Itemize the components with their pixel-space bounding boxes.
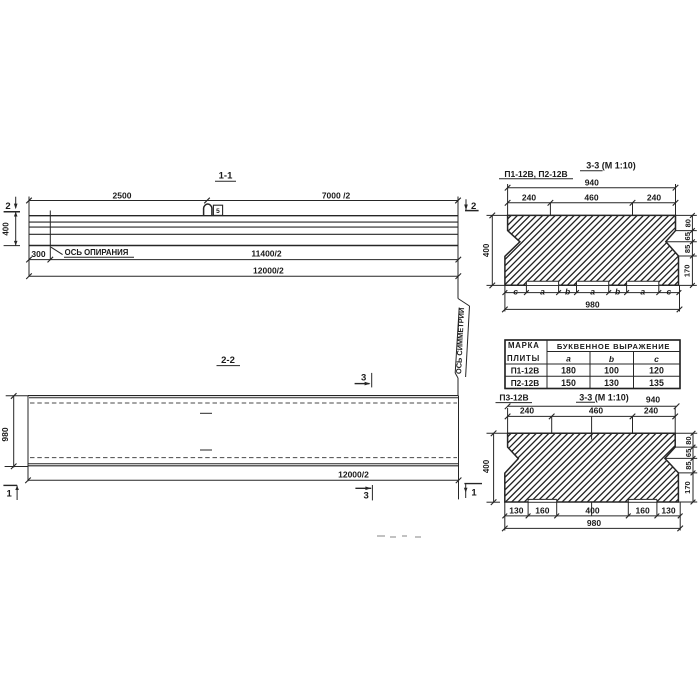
- svg-text:130: 130: [661, 506, 675, 516]
- svg-text:a: a: [590, 286, 595, 296]
- svg-text:МАРКА: МАРКА: [508, 341, 540, 350]
- svg-text:1: 1: [6, 489, 12, 500]
- svg-text:a: a: [640, 286, 645, 296]
- svg-text:2500: 2500: [113, 190, 132, 200]
- svg-text:П1-12В, П2-12В: П1-12В, П2-12В: [504, 169, 567, 179]
- svg-text:ПЛИТЫ: ПЛИТЫ: [507, 354, 540, 363]
- svg-text:160: 160: [535, 506, 549, 516]
- svg-text:150: 150: [561, 378, 576, 388]
- svg-text:c: c: [654, 354, 659, 364]
- svg-text:180: 180: [561, 366, 576, 376]
- svg-text:b: b: [615, 286, 620, 296]
- svg-text:2: 2: [5, 201, 10, 212]
- svg-text:980: 980: [587, 518, 601, 528]
- svg-text:П1-12В: П1-12В: [511, 366, 540, 376]
- svg-text:1: 1: [471, 487, 477, 498]
- svg-text:2-2: 2-2: [221, 355, 235, 366]
- svg-text:940: 940: [585, 178, 599, 188]
- svg-text:65: 65: [683, 232, 692, 240]
- svg-text:ОСЬ ОПИРАНИЯ: ОСЬ ОПИРАНИЯ: [65, 248, 129, 257]
- svg-text:a: a: [566, 354, 571, 364]
- svg-text:400: 400: [585, 506, 599, 516]
- svg-text:240: 240: [644, 406, 658, 416]
- svg-text:3-3 (М 1:10): 3-3 (М 1:10): [586, 161, 636, 171]
- svg-text:3: 3: [363, 490, 368, 501]
- svg-text:400: 400: [482, 459, 491, 473]
- svg-text:460: 460: [584, 192, 598, 202]
- svg-text:БУКВЕННОЕ ВЫРАЖЕНИЕ: БУКВЕННОЕ ВЫРАЖЕНИЕ: [557, 342, 670, 351]
- svg-text:ОСЬ СИММЕТРИИ: ОСЬ СИММЕТРИИ: [454, 308, 466, 375]
- svg-text:a: a: [540, 286, 545, 296]
- svg-text:160: 160: [636, 506, 650, 516]
- svg-text:c: c: [666, 286, 671, 296]
- svg-text:240: 240: [522, 192, 536, 202]
- svg-text:3: 3: [361, 373, 366, 384]
- svg-text:85: 85: [684, 461, 693, 469]
- svg-text:12000/2: 12000/2: [338, 469, 369, 479]
- svg-text:85: 85: [683, 245, 692, 253]
- svg-text:7000 /2: 7000 /2: [322, 191, 351, 201]
- svg-text:120: 120: [649, 366, 664, 376]
- svg-text:1-1: 1-1: [219, 171, 233, 182]
- svg-text:2: 2: [471, 201, 476, 212]
- svg-text:c: c: [513, 286, 518, 296]
- svg-text:100: 100: [604, 366, 619, 376]
- svg-text:170: 170: [683, 265, 692, 278]
- svg-text:5: 5: [216, 208, 220, 215]
- svg-text:240: 240: [520, 406, 534, 416]
- svg-text:980: 980: [0, 427, 10, 441]
- svg-text:300: 300: [31, 249, 45, 259]
- svg-text:400: 400: [1, 222, 10, 236]
- svg-text:240: 240: [647, 192, 661, 202]
- svg-text:135: 135: [649, 378, 664, 388]
- svg-text:П2-12В: П2-12В: [511, 378, 540, 388]
- svg-text:b: b: [565, 286, 570, 296]
- svg-text:80: 80: [684, 219, 693, 227]
- svg-text:980: 980: [585, 299, 599, 309]
- svg-text:400: 400: [482, 243, 491, 257]
- svg-text:3-3 (М 1:10): 3-3 (М 1:10): [579, 392, 629, 402]
- svg-text:b: b: [609, 354, 614, 364]
- svg-text:170: 170: [683, 481, 692, 494]
- svg-text:80: 80: [684, 436, 693, 444]
- svg-text:65: 65: [684, 449, 693, 457]
- svg-text:11400/2: 11400/2: [251, 249, 282, 259]
- svg-text:12000/2: 12000/2: [253, 265, 284, 275]
- svg-text:П3-12В: П3-12В: [499, 393, 528, 403]
- svg-text:940: 940: [646, 394, 660, 404]
- svg-text:460: 460: [589, 406, 603, 416]
- svg-text:130: 130: [604, 378, 619, 388]
- svg-text:130: 130: [509, 506, 523, 516]
